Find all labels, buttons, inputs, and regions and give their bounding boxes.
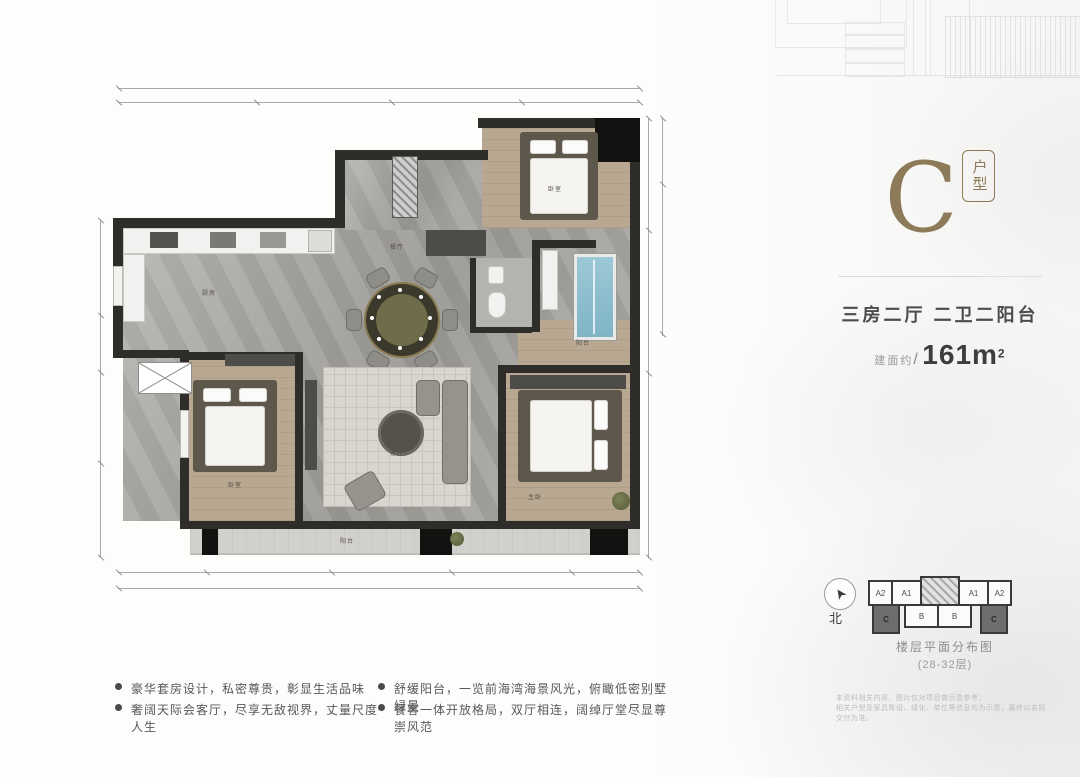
place-setting bbox=[370, 316, 374, 320]
sofa bbox=[442, 380, 468, 484]
stack-unit-a1-right: A1 bbox=[958, 580, 989, 606]
window bbox=[113, 266, 123, 306]
stack-unit-a2-left: A2 bbox=[868, 580, 893, 606]
bed-left-bedroom bbox=[193, 380, 277, 472]
disclaimer: 本资料相关内容、图片仅对项目做示意参考； 相关户型及家具陈设、绿化、单位等信息均… bbox=[836, 694, 1051, 724]
dining-chair bbox=[346, 309, 362, 331]
fridge bbox=[308, 230, 332, 252]
place-setting bbox=[398, 288, 402, 292]
cad-baseline bbox=[775, 75, 1080, 76]
wall bbox=[470, 327, 532, 333]
chaise bbox=[416, 380, 440, 416]
pillow bbox=[530, 140, 556, 154]
wall bbox=[540, 240, 596, 248]
dimension-line bbox=[662, 118, 663, 336]
stack-caption: 楼层平面分布图 bbox=[840, 638, 1050, 655]
tick-mark bbox=[646, 115, 652, 121]
bed-master-bedroom bbox=[518, 390, 622, 482]
place-setting bbox=[419, 337, 423, 341]
dimension-line bbox=[100, 220, 101, 558]
wall bbox=[189, 521, 640, 529]
tick-mark bbox=[98, 217, 104, 223]
place-setting bbox=[377, 295, 381, 299]
stack-unit-b-right: B bbox=[937, 604, 972, 628]
room-label-living: 客厅 bbox=[390, 448, 404, 457]
tick-mark bbox=[98, 554, 104, 560]
stack-unit-b-left: B bbox=[904, 604, 939, 628]
kitchen-counter bbox=[123, 254, 145, 322]
pillow bbox=[594, 400, 608, 430]
kitchen-appliance bbox=[210, 232, 236, 248]
structural-column bbox=[590, 529, 628, 555]
tick-mark bbox=[637, 585, 643, 591]
master-wardrobe bbox=[510, 375, 626, 389]
kitchen-sink bbox=[260, 232, 286, 248]
elevator-shaft bbox=[138, 362, 192, 394]
cad-sketch-decoration bbox=[775, 0, 1080, 80]
pillow bbox=[239, 388, 267, 402]
cad-line bbox=[845, 48, 905, 50]
mattress bbox=[205, 406, 265, 466]
tick-mark bbox=[254, 99, 260, 105]
area-slash: / bbox=[913, 351, 917, 368]
cad-hatch bbox=[945, 16, 1080, 78]
stack-unit-c-left: C bbox=[872, 604, 900, 634]
tick-mark bbox=[646, 227, 652, 233]
highlight-text: 奢阔天际会客厅，尽享无敌视界，丈量尺度人生 bbox=[131, 701, 385, 735]
structural-column bbox=[595, 118, 640, 162]
tick-mark bbox=[660, 115, 666, 121]
dimension-line bbox=[118, 588, 640, 589]
cad-line bbox=[913, 0, 914, 76]
elevator-x-icon bbox=[139, 363, 191, 393]
bed-top-bedroom bbox=[520, 132, 598, 220]
compass-arrow-icon: ➤ bbox=[831, 585, 849, 603]
place-setting bbox=[377, 337, 381, 341]
highlight-item: 餐客一体开放格局，双厅相连，阔绰厅堂尽显尊崇风范 bbox=[378, 701, 678, 735]
window bbox=[180, 410, 189, 458]
stack-unit-a1-left: A1 bbox=[891, 580, 922, 606]
divider-line bbox=[838, 276, 1042, 277]
cad-line bbox=[845, 62, 905, 64]
sink-fixture bbox=[488, 266, 504, 284]
cad-line bbox=[845, 34, 905, 36]
entry-cabinet bbox=[426, 230, 486, 256]
bullet-icon bbox=[378, 704, 385, 711]
bullet-icon bbox=[378, 683, 385, 690]
bullet-icon bbox=[115, 704, 122, 711]
north-compass-icon: ➤ bbox=[824, 578, 856, 610]
dining-table bbox=[366, 284, 438, 356]
shaft-hatch bbox=[392, 156, 418, 218]
tick-mark bbox=[637, 99, 643, 105]
place-setting bbox=[428, 316, 432, 320]
vanity-fixture bbox=[542, 250, 558, 310]
plant bbox=[612, 492, 630, 510]
stack-core-hatch bbox=[920, 576, 960, 606]
balcony-floor bbox=[190, 529, 640, 555]
wall bbox=[113, 350, 189, 358]
toilet-fixture bbox=[488, 292, 506, 318]
unit-area: 建面约/ 161m2 bbox=[830, 339, 1050, 371]
wall bbox=[506, 365, 630, 373]
cooktop bbox=[150, 232, 178, 248]
wall bbox=[498, 365, 506, 521]
dining-chair bbox=[442, 309, 458, 331]
tick-mark bbox=[204, 569, 210, 575]
unit-title-row: C 户型 bbox=[830, 150, 1050, 260]
floor-plan-render: 厨房 餐厅 客厅 卧室 卧室 主卧 阳台 阳台 bbox=[90, 80, 690, 615]
pillow bbox=[594, 440, 608, 470]
wall bbox=[335, 150, 345, 228]
balcony-pool bbox=[574, 254, 616, 340]
pillow bbox=[203, 388, 231, 402]
tick-mark bbox=[637, 569, 643, 575]
stack-caption-floors: (28-32层) bbox=[840, 656, 1050, 672]
disclaimer-line2: 相关户型及家具陈设、绿化、单位等信息均为示意，最终以实际交付为准。 bbox=[836, 704, 1051, 724]
bullet-icon bbox=[115, 683, 122, 690]
unit-card: C 户型 三房二厅 二卫二阳台 建面约/ 161m2 bbox=[830, 150, 1050, 371]
place-setting bbox=[398, 346, 402, 350]
disclaimer-line1: 本资料相关内容、图片仅对项目做示意参考； bbox=[836, 694, 1051, 704]
mattress bbox=[530, 400, 592, 472]
highlight-item: 豪华套房设计，私密尊贵，彰显生活品味 bbox=[115, 680, 375, 697]
dimension-line bbox=[648, 118, 649, 558]
stack-unit-a2-right: A2 bbox=[987, 580, 1012, 606]
room-label-balcony2: 阳台 bbox=[576, 338, 590, 347]
room-label-kitchen: 厨房 bbox=[202, 288, 216, 297]
structural-column bbox=[202, 529, 218, 555]
tick-mark bbox=[449, 569, 455, 575]
dresser bbox=[225, 354, 295, 366]
highlight-text: 餐客一体开放格局，双厅相连，阔绰厅堂尽显尊崇风范 bbox=[394, 701, 678, 735]
wall bbox=[630, 238, 640, 529]
tick-mark bbox=[116, 569, 122, 575]
wall bbox=[470, 258, 476, 333]
tick-mark bbox=[637, 85, 643, 91]
tick-mark bbox=[519, 99, 525, 105]
plant bbox=[450, 532, 464, 546]
tick-mark bbox=[646, 370, 652, 376]
tick-mark bbox=[116, 85, 122, 91]
dimension-line bbox=[118, 88, 640, 89]
balcony-railing bbox=[190, 553, 640, 555]
wall bbox=[113, 218, 345, 228]
unit-spec: 三房二厅 二卫二阳台 bbox=[830, 301, 1050, 327]
highlight-text: 豪华套房设计，私密尊贵，彰显生活品味 bbox=[131, 680, 365, 697]
tv-cabinet bbox=[305, 380, 317, 470]
stack-unit-c-right: C bbox=[980, 604, 1008, 634]
area-superscript: 2 bbox=[998, 347, 1006, 361]
tick-mark bbox=[98, 460, 104, 466]
room-label-master: 主卧 bbox=[528, 492, 542, 501]
tick-mark bbox=[116, 99, 122, 105]
place-setting bbox=[419, 295, 423, 299]
tick-mark bbox=[660, 181, 666, 187]
tick-mark bbox=[660, 331, 666, 337]
room-label-bedroom-left: 卧室 bbox=[228, 480, 242, 489]
tick-mark bbox=[569, 569, 575, 575]
floor-stack-diagram: A2 A1 A1 A2 C B B C bbox=[868, 578, 1014, 634]
tick-mark bbox=[329, 569, 335, 575]
structural-column bbox=[420, 529, 452, 555]
highlight-item: 奢阔天际会客厅，尽享无敌视界，丈量尺度人生 bbox=[115, 701, 385, 735]
dimension-line bbox=[118, 572, 640, 573]
floorplan-poster: 厨房 餐厅 客厅 卧室 卧室 主卧 阳台 阳台 C 户型 三房二厅 二卫二阳台 … bbox=[0, 0, 1080, 777]
room-label-balcony: 阳台 bbox=[340, 536, 354, 545]
area-value: 161m bbox=[922, 339, 998, 370]
wall bbox=[532, 240, 540, 332]
area-prefix: 建面约 bbox=[874, 355, 913, 367]
tick-mark bbox=[389, 99, 395, 105]
tick-mark bbox=[646, 554, 652, 560]
room-label-dining: 餐厅 bbox=[390, 242, 404, 251]
room-label-bedroom-top: 卧室 bbox=[548, 184, 562, 193]
tick-mark bbox=[98, 312, 104, 318]
cad-rect bbox=[787, 0, 881, 24]
dimension-line bbox=[118, 102, 640, 103]
cad-line bbox=[925, 0, 926, 76]
unit-type-badge: 户型 bbox=[962, 150, 995, 202]
wall bbox=[295, 352, 303, 521]
pillow bbox=[562, 140, 588, 154]
unit-letter: C bbox=[885, 142, 958, 254]
north-label: 北 bbox=[829, 608, 842, 627]
tick-mark bbox=[116, 585, 122, 591]
tick-mark bbox=[98, 369, 104, 375]
